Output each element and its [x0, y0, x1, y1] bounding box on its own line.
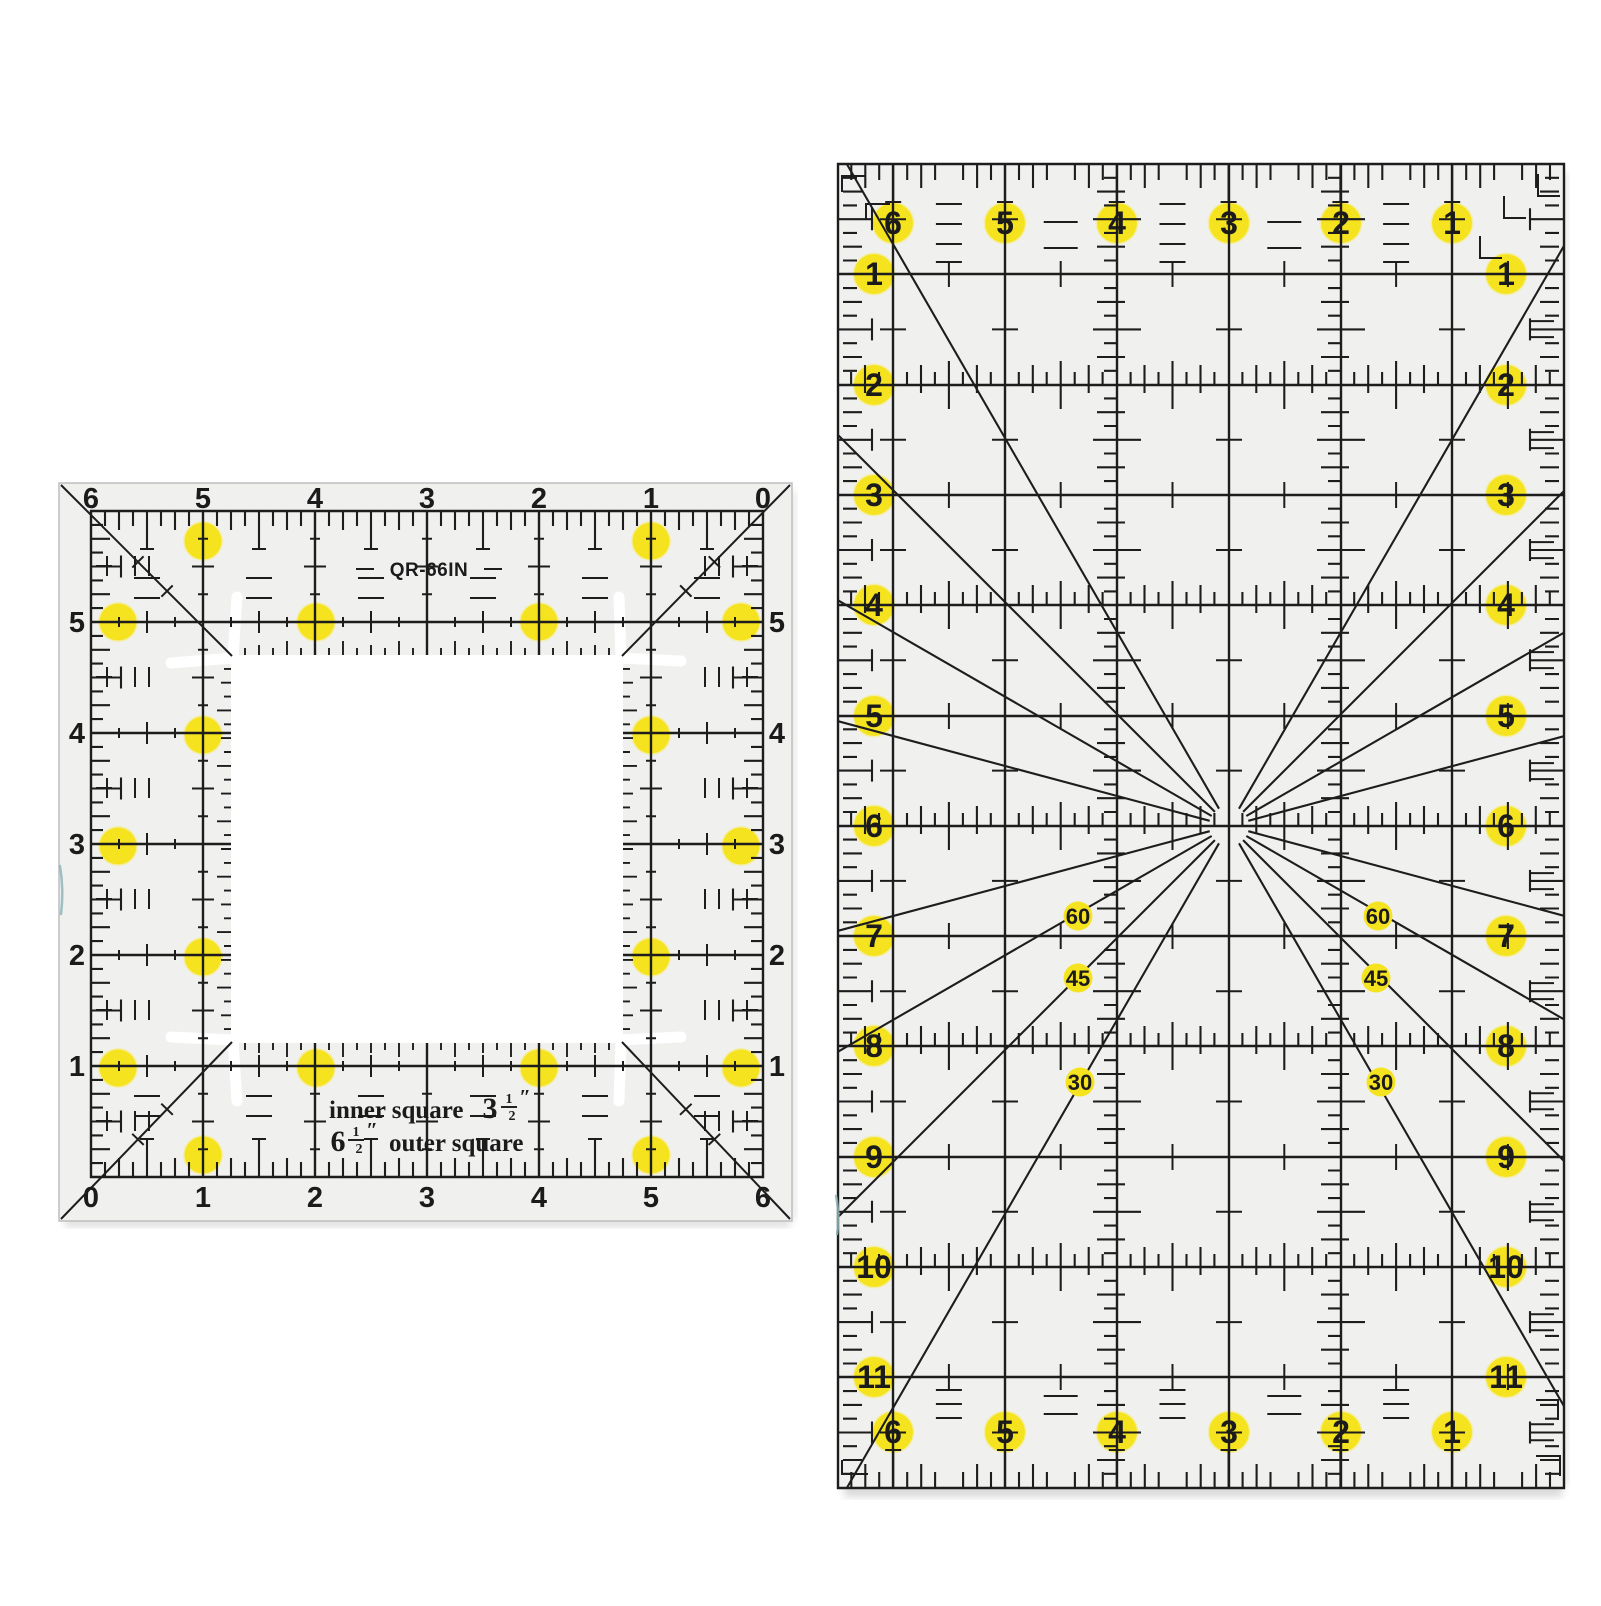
svg-text:30: 30 [1369, 1070, 1393, 1095]
svg-text:1: 1 [643, 483, 659, 515]
svg-text:10: 10 [856, 1249, 892, 1285]
svg-text:2: 2 [509, 1109, 516, 1124]
svg-text:11: 11 [1489, 1359, 1523, 1395]
svg-text:1: 1 [769, 1051, 785, 1083]
svg-text:6: 6 [884, 1414, 902, 1450]
svg-text:4: 4 [69, 718, 85, 750]
svg-text:inner square: inner square [329, 1097, 464, 1124]
svg-text:2: 2 [769, 940, 785, 972]
svg-text:60: 60 [1366, 904, 1390, 929]
svg-text:6: 6 [1497, 808, 1515, 844]
svg-text:0: 0 [83, 1182, 99, 1214]
svg-text:4: 4 [769, 718, 785, 750]
svg-text:2: 2 [1332, 1414, 1350, 1450]
svg-text:6: 6 [83, 483, 99, 515]
svg-text:3: 3 [1497, 477, 1515, 513]
svg-text:45: 45 [1364, 966, 1388, 991]
svg-text:6: 6 [755, 1182, 771, 1214]
svg-text:1: 1 [865, 256, 883, 292]
svg-text:6: 6 [865, 808, 883, 844]
svg-text:11: 11 [857, 1359, 891, 1395]
svg-text:9: 9 [1497, 1139, 1515, 1175]
svg-text:2: 2 [307, 1182, 323, 1214]
svg-text:8: 8 [865, 1028, 883, 1064]
svg-text:4: 4 [307, 483, 323, 515]
svg-text:5: 5 [996, 205, 1014, 241]
svg-text:5: 5 [643, 1182, 659, 1214]
svg-text:2: 2 [356, 1142, 363, 1157]
svg-text:3: 3 [69, 829, 85, 861]
svg-text:6: 6 [884, 205, 902, 241]
svg-text:0: 0 [755, 483, 771, 515]
svg-text:4: 4 [1108, 205, 1126, 241]
svg-text:9: 9 [865, 1139, 883, 1175]
svg-text:2: 2 [69, 940, 85, 972]
svg-text:2: 2 [1332, 205, 1350, 241]
svg-text:1: 1 [1443, 205, 1461, 241]
svg-text:3: 3 [419, 1182, 435, 1214]
svg-text:8: 8 [1497, 1028, 1515, 1064]
svg-text:7: 7 [865, 918, 883, 954]
svg-text:3: 3 [483, 1092, 498, 1125]
svg-text:5: 5 [195, 483, 211, 515]
svg-text:3: 3 [1220, 1414, 1238, 1450]
svg-text:3: 3 [1220, 205, 1238, 241]
svg-text:4: 4 [865, 587, 883, 623]
svg-text:5: 5 [996, 1414, 1014, 1450]
svg-text:4: 4 [531, 1182, 547, 1214]
svg-text:45: 45 [1066, 966, 1090, 991]
svg-text:10: 10 [1488, 1249, 1524, 1285]
svg-text:30: 30 [1068, 1070, 1092, 1095]
svg-text:2: 2 [865, 367, 883, 403]
svg-text:2: 2 [531, 483, 547, 515]
svg-text:1: 1 [506, 1092, 513, 1107]
svg-text:3: 3 [419, 483, 435, 515]
svg-text:4: 4 [1108, 1414, 1126, 1450]
svg-text:4: 4 [1497, 587, 1515, 623]
svg-text:5: 5 [69, 607, 85, 639]
svg-text:3: 3 [769, 829, 785, 861]
svg-text:QR-66IN: QR-66IN [390, 560, 468, 581]
svg-text:1: 1 [195, 1182, 211, 1214]
svg-text:3: 3 [865, 477, 883, 513]
svg-text:5: 5 [769, 607, 785, 639]
svg-text:2: 2 [1497, 367, 1515, 403]
svg-text:″: ″ [519, 1085, 531, 1109]
svg-text:1: 1 [353, 1125, 360, 1140]
svg-text:″: ″ [366, 1118, 378, 1142]
svg-text:60: 60 [1066, 904, 1090, 929]
svg-text:1: 1 [1497, 256, 1515, 292]
svg-text:outer square: outer square [389, 1130, 524, 1157]
svg-text:1: 1 [1443, 1414, 1461, 1450]
svg-text:7: 7 [1497, 918, 1515, 954]
svg-text:5: 5 [1497, 698, 1515, 734]
svg-text:5: 5 [865, 698, 883, 734]
svg-text:6: 6 [331, 1125, 346, 1158]
svg-text:1: 1 [69, 1051, 85, 1083]
